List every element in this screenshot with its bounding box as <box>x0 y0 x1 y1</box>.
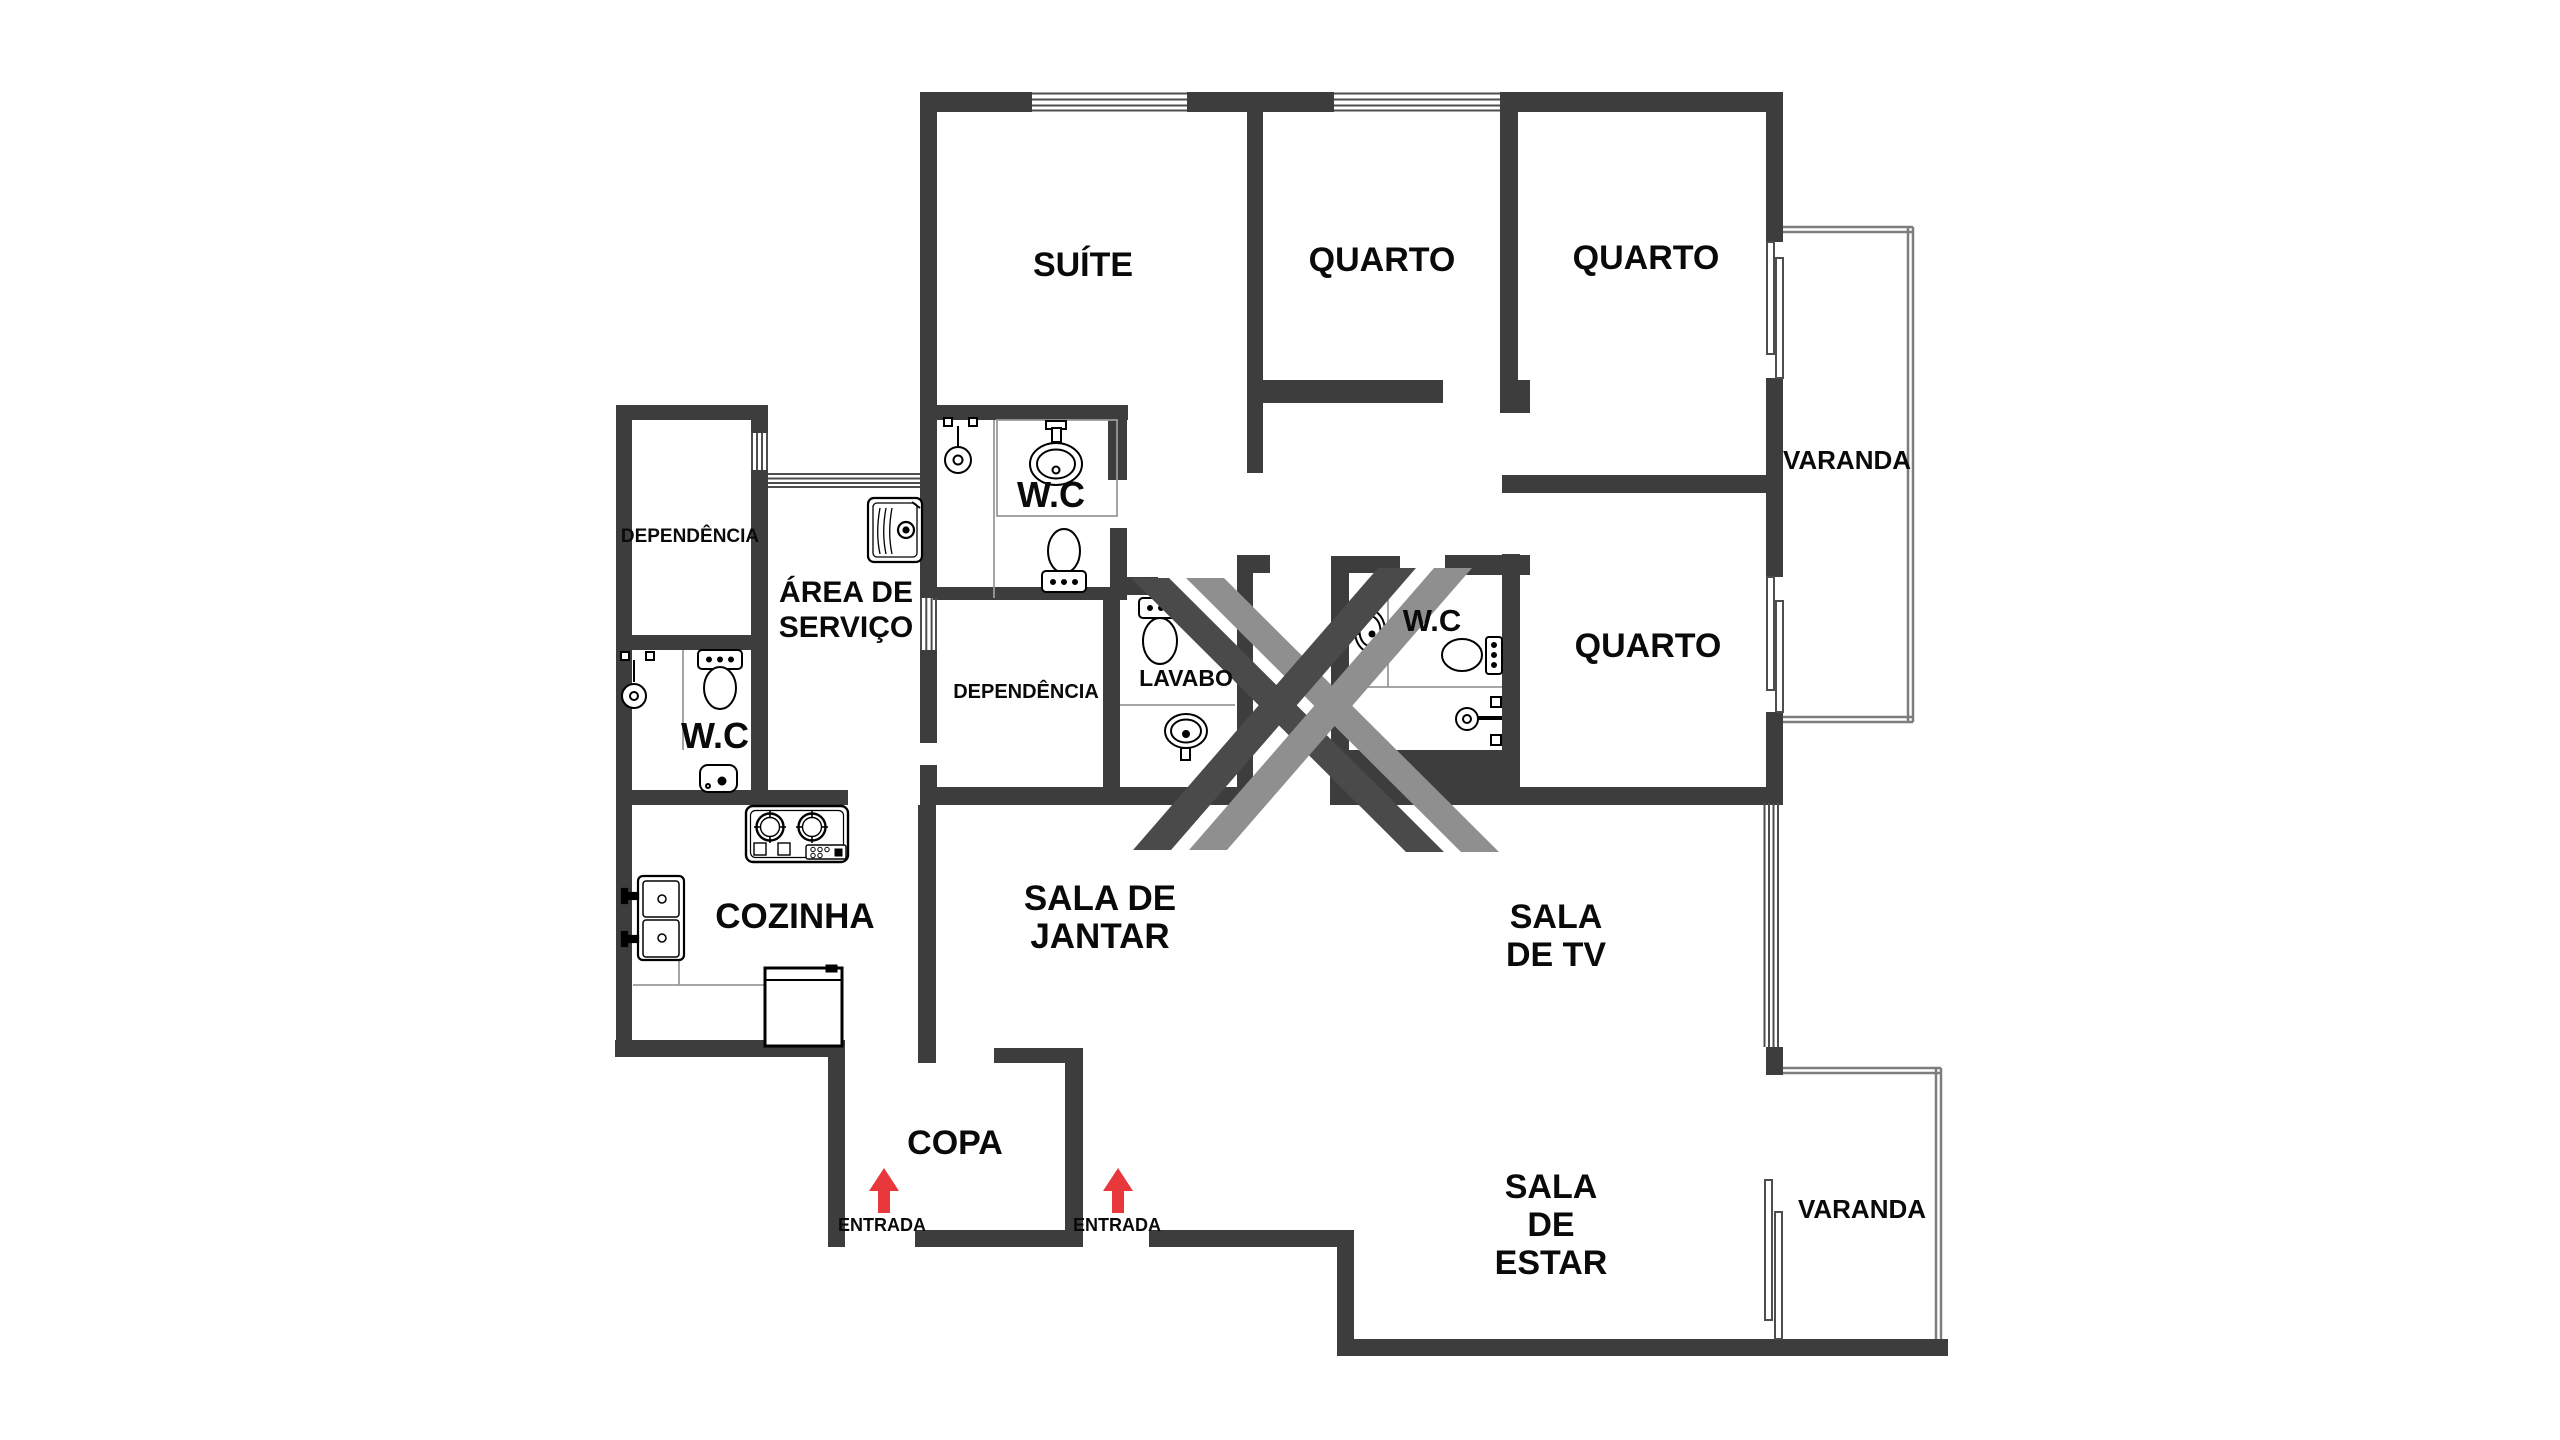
window-glyph-area-servico <box>768 474 920 487</box>
wall-right-3 <box>1766 712 1783 803</box>
wall-lavabo-corner <box>1237 555 1270 573</box>
room-label-sala-jantar-1: SALA DE <box>1024 879 1176 918</box>
wall-depleft-left <box>616 405 632 1057</box>
room-label-varanda-top: VARANDA <box>1783 445 1911 475</box>
entrance-label-service: ENTRADA <box>838 1215 926 1235</box>
wall-top-3 <box>1500 92 1783 112</box>
room-label-quarto-2: QUARTO <box>1573 239 1720 277</box>
wall-right-stub <box>1766 1047 1783 1075</box>
sliding-door-glyph-quarto2 <box>1767 242 1774 354</box>
room-label-wc-center: W.C <box>1403 603 1462 638</box>
room-label-area-servico-2: SERVIÇO <box>779 611 914 644</box>
room-label-varanda-bottom: VARANDA <box>1798 1194 1926 1224</box>
wall-depleft-top <box>616 405 768 420</box>
wall-copa-bottom <box>915 1230 1083 1247</box>
sliding-door-glyph-sala-estar <box>1765 1180 1772 1320</box>
wall-copa-topright <box>994 1048 1083 1063</box>
wall-right-2 <box>1766 378 1783 577</box>
wall-right-1 <box>1766 92 1783 242</box>
laundry-tank-icon <box>868 498 922 562</box>
sink-icon-wcleft-small <box>700 765 737 792</box>
room-label-sala-estar-3: ESTAR <box>1495 1244 1608 1282</box>
wall-depleft-right-b <box>751 470 768 648</box>
room-label-area-servico-1: ÁREA DE <box>779 575 913 609</box>
wall-entry-right <box>1149 1230 1354 1247</box>
room-label-quarto-3: QUARTO <box>1575 627 1722 665</box>
wall-depleft-right-a <box>751 420 768 433</box>
room-label-quarto-1: QUARTO <box>1309 241 1456 279</box>
cooktop-icon <box>746 806 848 862</box>
room-label-sala-tv-1: SALA <box>1510 898 1603 936</box>
wall-wcsuite-bottom <box>933 587 1117 600</box>
window-glyph-top-suite <box>1032 92 1187 112</box>
wall-suite-bottom <box>936 405 1128 420</box>
wall-depleft-bottom <box>616 635 768 650</box>
room-label-copa: COPA <box>907 1124 1003 1162</box>
room-label-sala-jantar-2: JANTAR <box>1030 917 1169 956</box>
room-label-sala-estar-1: SALA <box>1505 1168 1598 1206</box>
room-label-lavabo: LAVABO <box>1139 665 1233 691</box>
room-label-sala-tv-2: DE TV <box>1506 936 1606 974</box>
entrance-arrow-icon-main <box>1103 1168 1133 1213</box>
wall-quarto1-quarto2 <box>1500 112 1518 413</box>
entrance-arrows <box>869 1168 1133 1213</box>
toilet-icon-wccenter <box>1442 637 1502 674</box>
kitchen-counter <box>679 958 765 985</box>
room-label-cozinha: COZINHA <box>715 897 874 936</box>
room-label-wc-suite: W.C <box>1017 474 1085 515</box>
wall-quarto2-bottom <box>1502 475 1783 493</box>
wall-nub-vestibule <box>1518 380 1530 413</box>
shower-icon-wcsuite <box>944 418 977 473</box>
wall-kitchen-right <box>918 805 936 1063</box>
floor-plan-page: SUÍTE QUARTO QUARTO QUARTO VARANDA VARAN… <box>0 0 2560 1440</box>
wall-wcleft-right <box>751 648 768 790</box>
varanda-outlines <box>1783 227 1941 1339</box>
sliding-door-glyph-quarto3 <box>1767 577 1774 690</box>
room-label-wc-service: W.C <box>681 715 749 756</box>
window-glyph-sala-tv <box>1765 803 1779 1047</box>
room-label-sala-estar-2: DE <box>1527 1206 1574 1244</box>
fridge-icon <box>765 965 842 1046</box>
shower-icon-wccenter <box>1456 697 1502 745</box>
window-glyph-dependencia-left <box>752 433 767 470</box>
wall-bottom-exterior <box>1337 1339 1948 1356</box>
entrance-label-main: ENTRADA <box>1073 1215 1161 1235</box>
wall-top-2 <box>1187 92 1334 112</box>
sink-icon-lavabo <box>1165 714 1207 760</box>
toilet-icon-wcleft <box>698 650 742 709</box>
entrance-arrow-icon-service <box>869 1168 899 1213</box>
window-glyph-left-wall <box>921 598 936 650</box>
room-label-dependencia-left: DEPENDÊNCIA <box>621 525 760 547</box>
floor-plan-svg: SUÍTE QUARTO QUARTO QUARTO VARANDA VARAN… <box>0 0 2560 1440</box>
room-label-dependencia-center: DEPENDÊNCIA <box>953 679 1099 703</box>
wall-suite-quarto1 <box>1247 112 1263 473</box>
wall-left-mid <box>920 650 937 743</box>
toilet-icon-wcsuite <box>1042 529 1086 592</box>
window-glyph-top-quarto1 <box>1334 92 1500 112</box>
wall-depcenter-right <box>1103 600 1120 788</box>
wall-quarto1-bottom <box>1263 380 1443 403</box>
room-label-suite: SUÍTE <box>1033 246 1133 284</box>
